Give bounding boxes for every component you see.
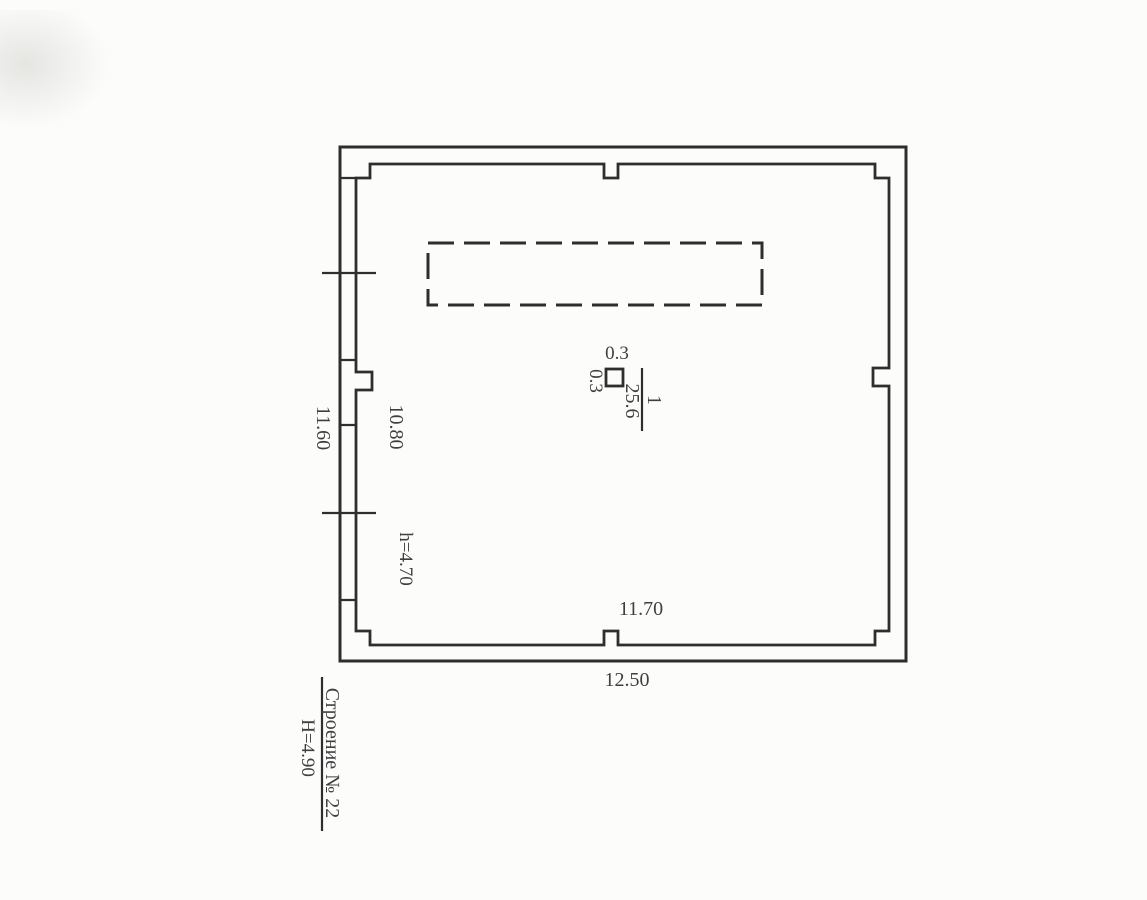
left-wall-dimension-ticks [322,273,376,513]
column-size-side-label: 0.3 [585,369,606,393]
floor-plan-drawing: 0.3 0.3 1 25.6 11.60 10.80 h=4.70 11.70 … [0,0,1147,900]
dashed-overhang-outline [428,243,762,305]
dim-left-inner-label: 10.80 [385,405,407,450]
column-marker [606,369,623,386]
ceiling-height-label: h=4.70 [395,532,416,585]
dim-left-outer-label: 11.60 [312,406,334,450]
building-height-label: Н=4.90 [297,719,318,777]
room-area-label: 25.6 [621,384,643,419]
building-name-label: Строение № 22 [321,688,343,819]
column-size-top-label: 0.3 [605,343,629,364]
scanned-floor-plan-page: 0.3 0.3 1 25.6 11.60 10.80 h=4.70 11.70 … [0,0,1147,900]
dim-bottom-outer-label: 12.50 [605,669,650,691]
left-wall-segment-lines [341,178,356,600]
room-number-label: 1 [643,395,665,405]
dim-bottom-inner-label: 11.70 [619,598,663,620]
